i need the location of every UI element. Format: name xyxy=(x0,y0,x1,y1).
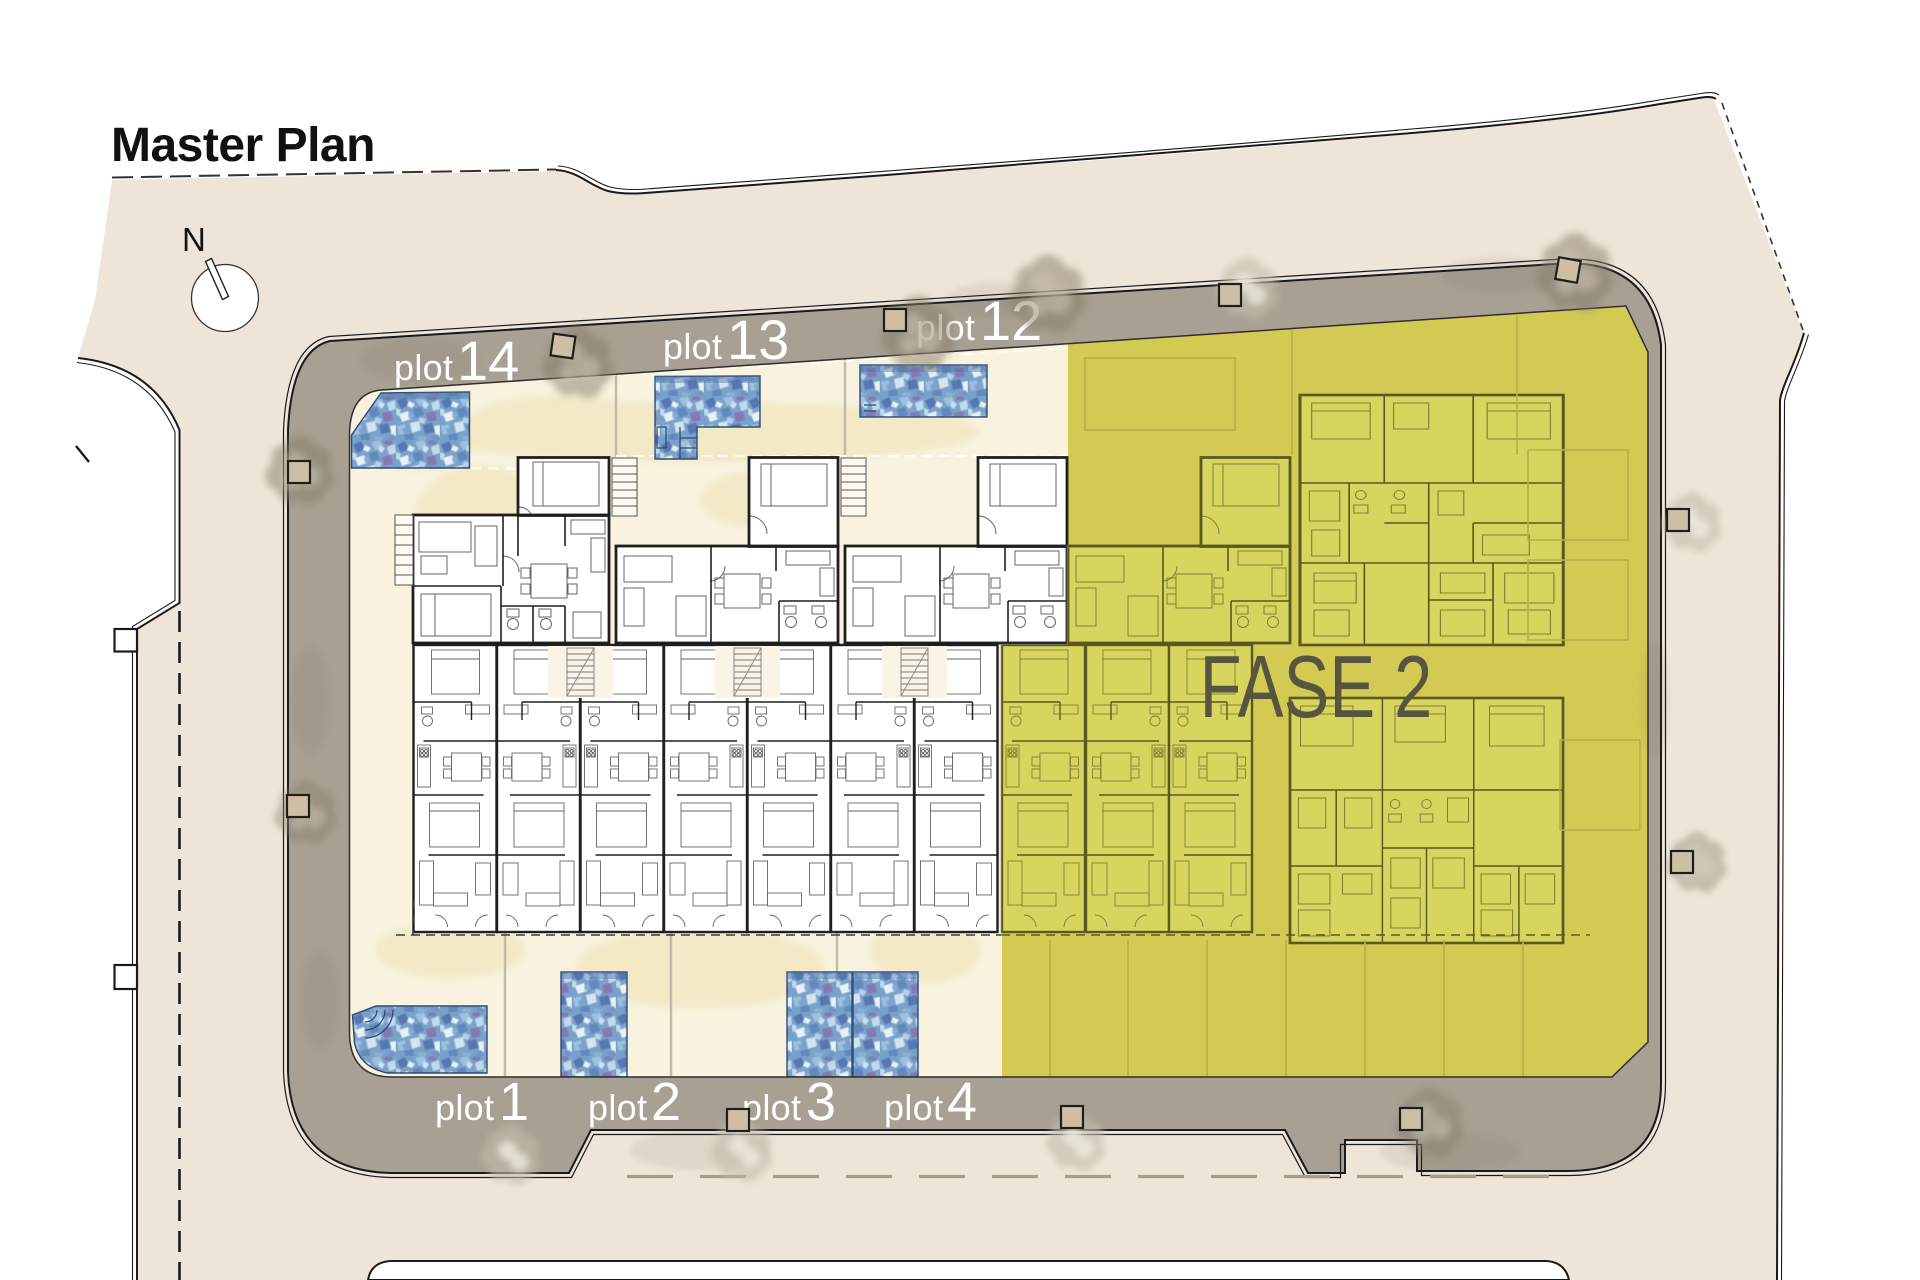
svg-text:plot: plot xyxy=(884,1087,943,1128)
svg-text:N: N xyxy=(182,221,206,258)
svg-text:3: 3 xyxy=(806,1072,836,1132)
svg-text:2: 2 xyxy=(651,1072,681,1132)
svg-text:plot: plot xyxy=(394,347,453,388)
svg-text:plot: plot xyxy=(435,1087,494,1128)
svg-text:14: 14 xyxy=(457,329,519,392)
svg-text:Master Plan: Master Plan xyxy=(111,119,375,172)
svg-text:plot: plot xyxy=(663,326,722,367)
svg-text:1: 1 xyxy=(499,1072,529,1132)
svg-text:13: 13 xyxy=(727,308,789,371)
svg-text:plot: plot xyxy=(588,1087,647,1128)
svg-text:FASE 2: FASE 2 xyxy=(1200,638,1433,736)
svg-text:4: 4 xyxy=(947,1072,977,1132)
